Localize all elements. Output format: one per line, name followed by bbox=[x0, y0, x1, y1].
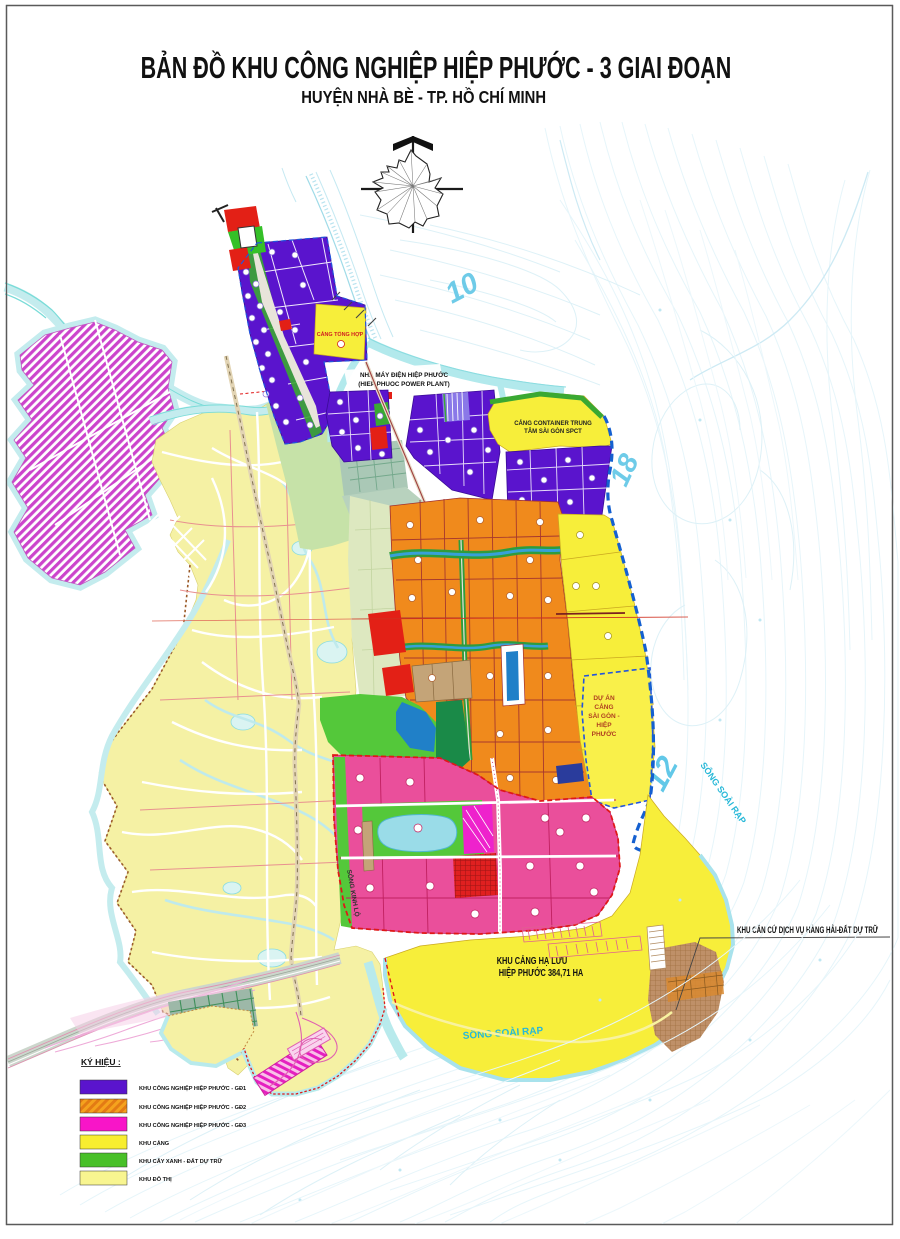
svg-text:KHU CÔNG NGHIỆP HIỆP PHƯỚC - G: KHU CÔNG NGHIỆP HIỆP PHƯỚC - GĐ3 bbox=[139, 1121, 246, 1129]
svg-text:KHU ĐÔ THỊ: KHU ĐÔ THỊ bbox=[139, 1175, 172, 1183]
svg-text:DỰ ÁN: DỰ ÁN bbox=[593, 693, 615, 702]
svg-text:KHU CÔNG NGHIỆP HIỆP PHƯỚC - G: KHU CÔNG NGHIỆP HIỆP PHƯỚC - GĐ2 bbox=[139, 1103, 246, 1111]
svg-text:CẢNG: CẢNG bbox=[594, 702, 613, 711]
svg-text:PHƯỚC: PHƯỚC bbox=[592, 729, 617, 738]
svg-text:TÂM SÀI GÒN SPCT: TÂM SÀI GÒN SPCT bbox=[524, 427, 582, 435]
svg-text:HIỆP PHƯỚC 384,71 HA: HIỆP PHƯỚC 384,71 HA bbox=[499, 966, 584, 979]
svg-text:(HIEP PHUOC POWER PLANT): (HIEP PHUOC POWER PLANT) bbox=[358, 381, 450, 388]
svg-text:KHU CÔNG NGHIỆP HIỆP PHƯỚC - G: KHU CÔNG NGHIỆP HIỆP PHƯỚC - GĐ1 bbox=[139, 1084, 246, 1092]
svg-text:CẢNG TỔNG HỢP: CẢNG TỔNG HỢP bbox=[317, 331, 364, 338]
svg-text:KÝ HIỆU :: KÝ HIỆU : bbox=[81, 1056, 121, 1067]
svg-text:KHU CẢNG HẠ LƯU: KHU CẢNG HẠ LƯU bbox=[497, 954, 568, 967]
svg-text:KHU CẢNG: KHU CẢNG bbox=[139, 1140, 169, 1147]
svg-text:HUYỆN NHÀ BÈ - TP. HỒ CHÍ MINH: HUYỆN NHÀ BÈ - TP. HỒ CHÍ MINH bbox=[301, 87, 546, 108]
svg-text:KHU CÂY XANH - ĐẤT DỰ TRỮ: KHU CÂY XANH - ĐẤT DỰ TRỮ bbox=[139, 1158, 222, 1165]
svg-text:HIỆP: HIỆP bbox=[596, 720, 612, 729]
svg-text:SÀI GÒN -: SÀI GÒN - bbox=[588, 711, 619, 720]
svg-text:BẢN ĐỒ KHU CÔNG NGHIỆP HIỆP PH: BẢN ĐỒ KHU CÔNG NGHIỆP HIỆP PHƯỚC - 3 GI… bbox=[141, 50, 732, 85]
svg-text:CẢNG CONTAINER TRUNG: CẢNG CONTAINER TRUNG bbox=[514, 420, 592, 427]
